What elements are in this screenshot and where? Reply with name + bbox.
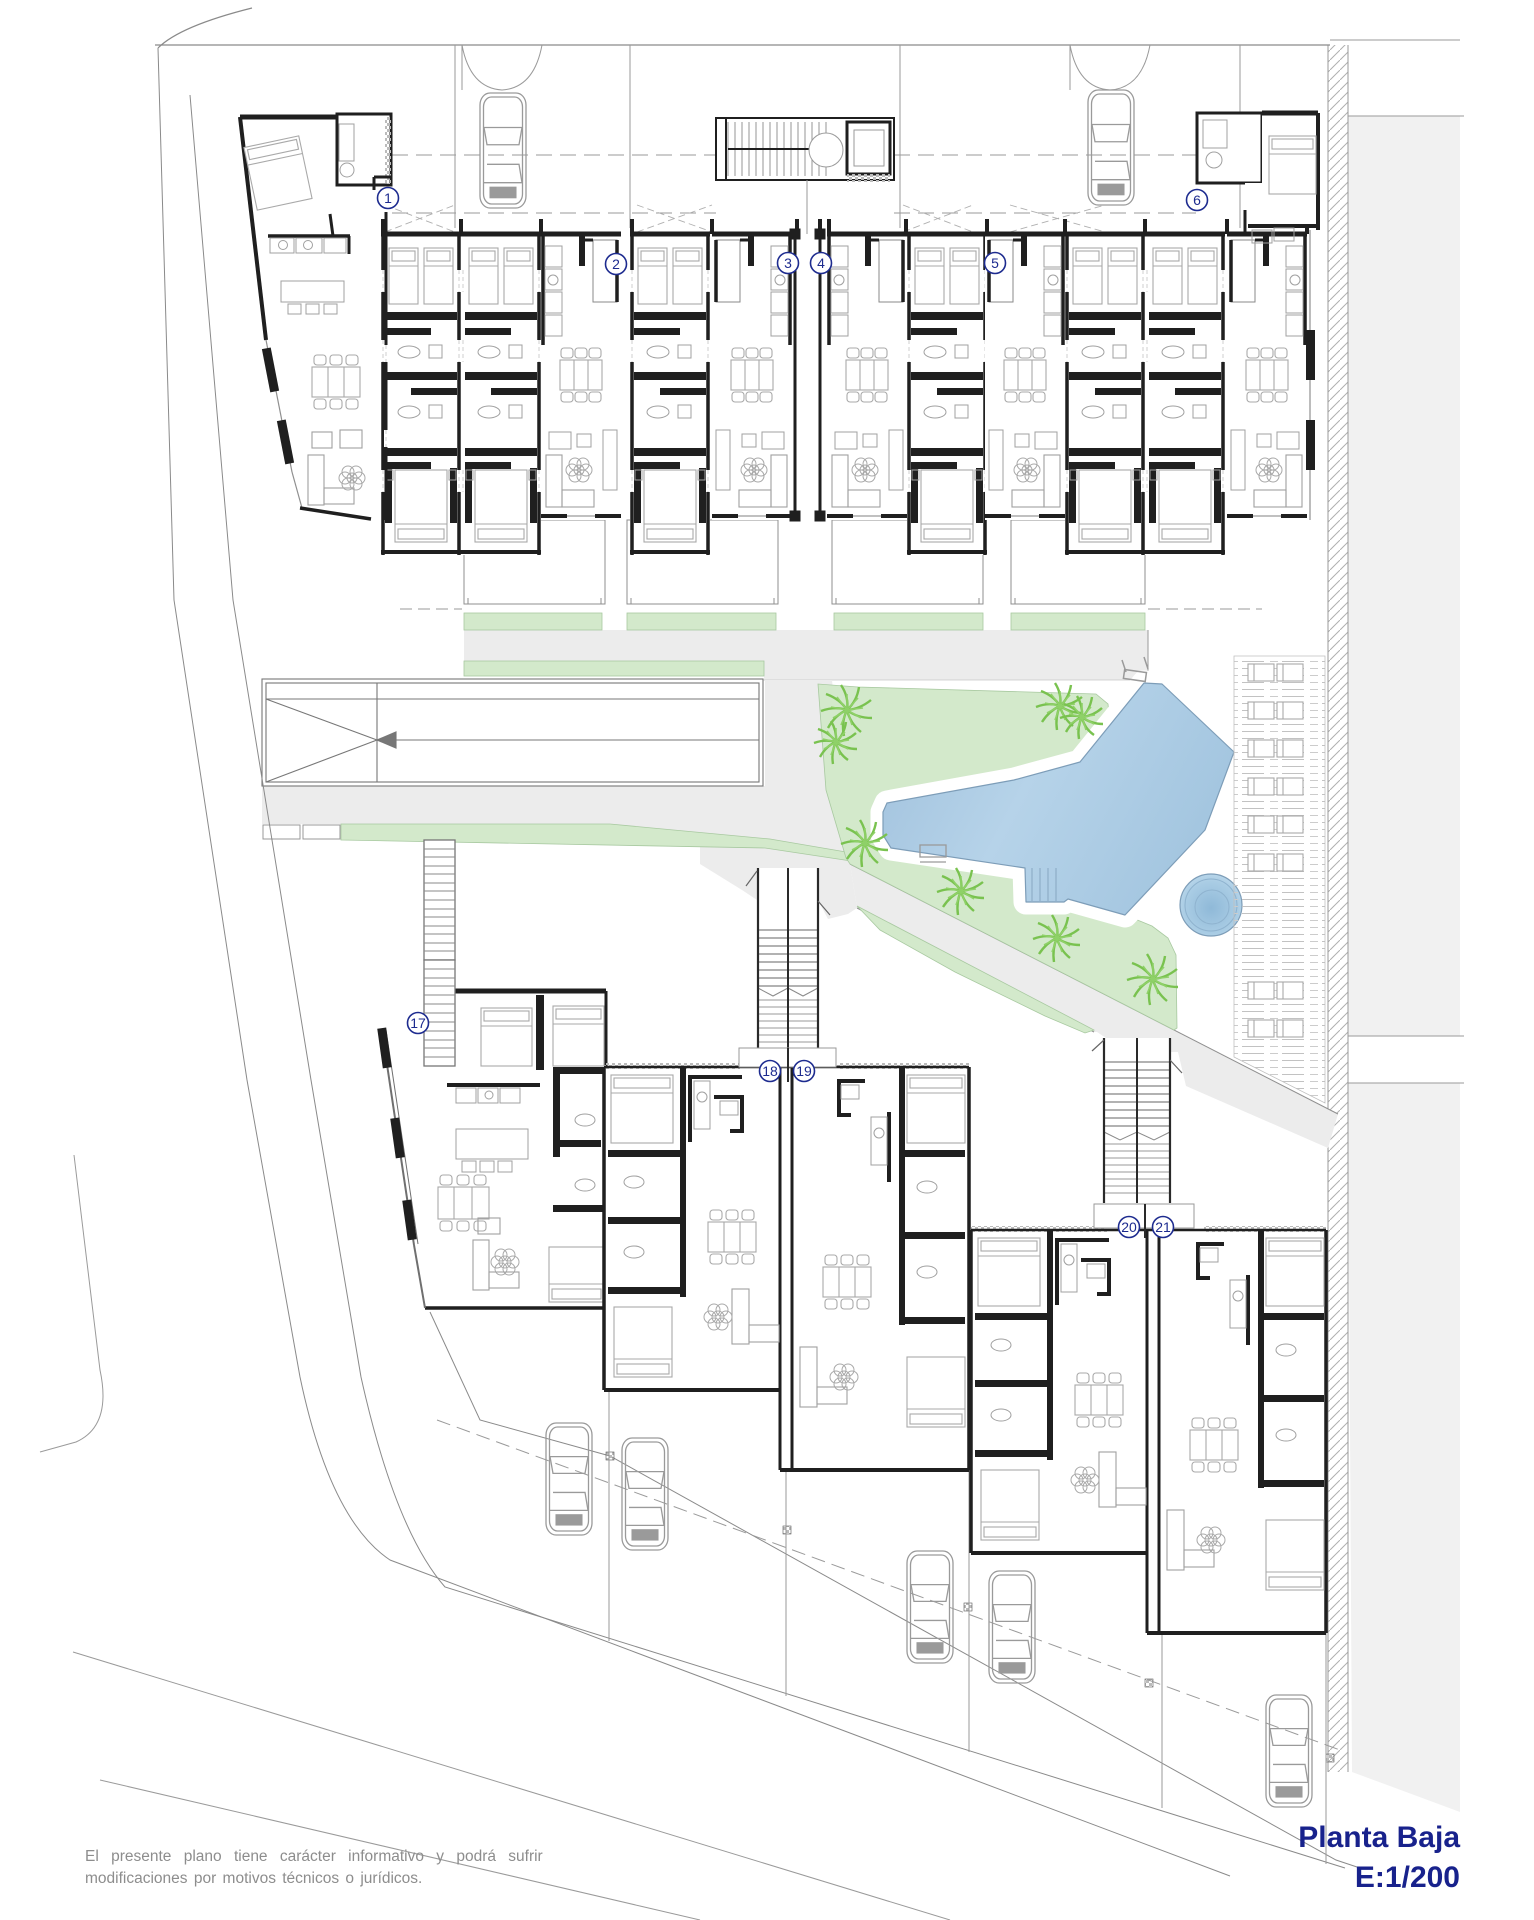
svg-text:2: 2 [612, 256, 620, 272]
svg-text:4: 4 [817, 255, 825, 271]
svg-text:modificaciones por motivos téc: modificaciones por motivos técnicos o ju… [85, 1870, 422, 1887]
svg-text:6: 6 [1193, 192, 1201, 208]
svg-text:19: 19 [796, 1063, 812, 1079]
svg-text:18: 18 [762, 1063, 778, 1079]
svg-text:El presente plano tiene caráct: El presente plano tiene carácter informa… [85, 1848, 543, 1865]
svg-text:1: 1 [384, 190, 392, 206]
svg-text:E:1/200: E:1/200 [1355, 1861, 1460, 1894]
svg-text:21: 21 [1155, 1219, 1171, 1235]
svg-text:17: 17 [410, 1015, 426, 1031]
svg-text:Planta Baja: Planta Baja [1298, 1821, 1460, 1854]
svg-text:5: 5 [991, 255, 999, 271]
svg-text:3: 3 [784, 255, 792, 271]
svg-text:20: 20 [1121, 1219, 1137, 1235]
